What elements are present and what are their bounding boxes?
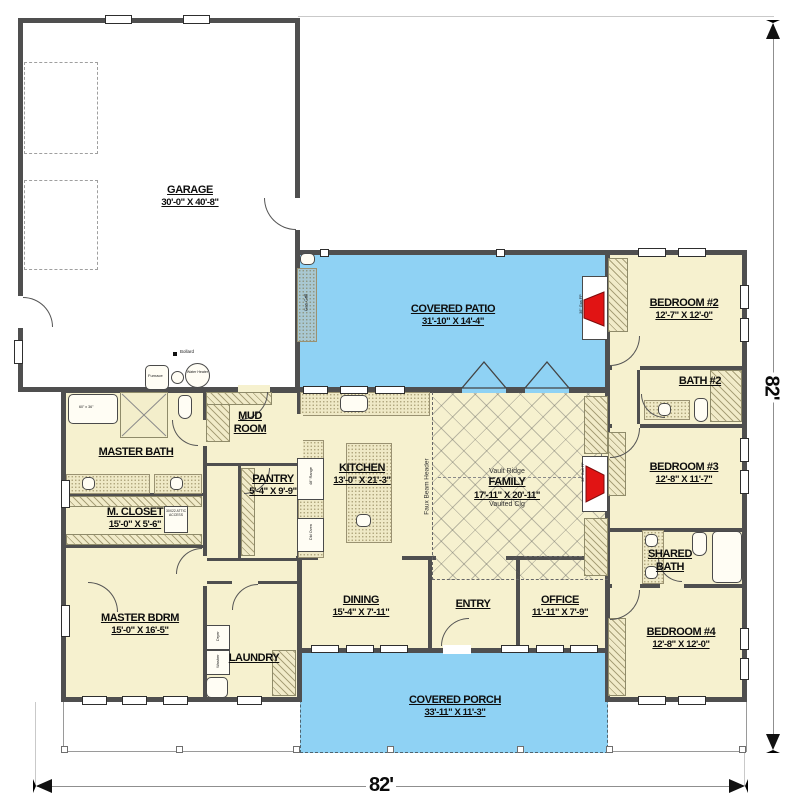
bath2-name: BATH #2 (679, 375, 721, 388)
window (678, 248, 706, 257)
laundry-label: LAUNDRY (229, 652, 280, 665)
hall-opening (293, 414, 303, 458)
window (122, 696, 147, 705)
cased-opening (318, 556, 402, 560)
bath2-toilet (694, 398, 708, 422)
bedroom3-dims: 12'-8" X 11'-7" (650, 474, 719, 485)
master-toilet (178, 395, 192, 419)
vanity-sink (658, 403, 671, 416)
window (740, 628, 749, 650)
porch-post (739, 746, 746, 753)
bedroom2-label: BEDROOM #2 12'-7" X 12'-0" (650, 297, 719, 322)
wall-segment (205, 558, 298, 561)
gas-grill-label: Gas Grill (305, 285, 310, 319)
vaulted-clg-note: Vaulted Clg (474, 501, 540, 509)
bedroom2-dims: 12'-7" X 12'-0" (650, 310, 719, 321)
pantry-name: PANTRY (249, 473, 296, 486)
porch-post (517, 746, 524, 753)
extension-line-left (35, 702, 36, 786)
water-heater-label: Water Heater (186, 371, 209, 375)
window (61, 480, 70, 508)
tub-size-label: 60" x 36" (79, 406, 93, 410)
vanity-sink (645, 534, 658, 547)
porch-post (293, 746, 300, 753)
covered-porch-dims: 33'-11" X 11'-3" (409, 707, 501, 718)
master-bath-name: MASTER BATH (99, 446, 174, 459)
window (105, 15, 132, 24)
garage-floor-drain (171, 371, 184, 384)
patio-sink (300, 253, 315, 265)
patio-door-gap (525, 384, 569, 393)
bedroom3-label: BEDROOM #3 12'-8" X 11'-7" (650, 461, 719, 486)
bedroom4-name: BEDROOM #4 (647, 626, 716, 639)
bedroom3-name: BEDROOM #3 (650, 461, 719, 474)
window (311, 645, 339, 653)
window (340, 386, 368, 394)
closet-shelving (66, 534, 202, 545)
entry-door-gap (443, 645, 471, 654)
garage-label: GARAGE 30'-0" X 40'-8" (161, 184, 218, 209)
window (61, 605, 70, 637)
family-dims: 17'-11" X 20'-11" (474, 490, 540, 501)
office-dims: 11'-11" X 7'-9" (532, 607, 588, 618)
dimension-arrow-left (33, 779, 52, 793)
covered-patio-label: COVERED PATIO 31'-10" X 14'-4" (411, 303, 495, 328)
family-fireplace-niche (582, 456, 608, 512)
kitchen-label: KITCHEN 13'-0" X 21'-3" (333, 462, 390, 487)
pantry-dims: 5'-4" X 9'-9" (249, 486, 296, 497)
family-fireplace-label: 36" Gas FP (581, 457, 585, 487)
window (375, 386, 405, 394)
kitchen-sink (340, 395, 368, 412)
mud-room-label: MUD ROOM (234, 410, 267, 436)
wall-segment (63, 545, 205, 548)
bedroom2-closet (608, 258, 628, 332)
master-bdrm-label: MASTER BDRM 15'-0" X 16'-5" (101, 612, 179, 637)
dining-label: DINING 15'-4" X 7'-11" (333, 594, 390, 619)
master-bath-label: MASTER BATH (99, 446, 174, 459)
window (237, 696, 262, 705)
covered-porch-name: COVERED PORCH (409, 694, 501, 707)
bedroom4-label: BEDROOM #4 12'-8" X 12'-0" (647, 626, 716, 651)
bollard-label: Bollard (180, 350, 194, 355)
window (380, 645, 408, 653)
window (740, 438, 749, 462)
laundry-name: LAUNDRY (229, 652, 280, 665)
door-gap (612, 584, 640, 588)
window (570, 645, 598, 653)
window (638, 248, 666, 257)
family-name: FAMILY (474, 476, 540, 489)
garage-storage-dashed (24, 180, 98, 270)
window (346, 645, 374, 653)
porch-post (606, 746, 613, 753)
kitchen-island (346, 443, 392, 543)
wall-segment (205, 463, 298, 466)
patio-post (320, 249, 329, 257)
door-gap (660, 584, 684, 588)
family-builtin (584, 396, 608, 454)
family-label: Vault Ridge FAMILY 17'-11" X 20'-11" Vau… (474, 468, 540, 509)
bedroom4-dims: 12'-8" X 12'-0" (647, 639, 716, 650)
bedroom4-closet (608, 618, 626, 696)
mud-room-name: MUD ROOM (234, 410, 267, 436)
m-closet-dims: 15'-0" X 5'-6" (107, 519, 163, 530)
master-vanity (66, 474, 150, 494)
patio-fireplace-label: 36" Gas FP (579, 289, 583, 319)
water-heater: Water Heater (185, 363, 210, 388)
master-bdrm-name: MASTER BDRM (101, 612, 179, 625)
covered-patio-name: COVERED PATIO (411, 303, 495, 316)
entry-label: ENTRY (456, 598, 491, 611)
garage-dims: 30'-0" X 40'-8" (161, 197, 218, 208)
dimension-arrow-right (729, 779, 748, 793)
vault-ridge-note: Vault Ridge (474, 468, 540, 476)
window (740, 470, 749, 494)
island-sink (356, 514, 371, 527)
window (163, 696, 188, 705)
m-closet-label: M. CLOSET 15'-0" X 5'-6" (107, 506, 163, 531)
covered-porch-label: COVERED PORCH 33'-11" X 11'-3" (409, 694, 501, 719)
vanity-sink (82, 477, 95, 490)
extension-line-top (298, 16, 774, 17)
covered-patio-dims: 31'-10" X 14'-4" (411, 316, 495, 327)
bath2-label: BATH #2 (679, 375, 721, 388)
dimension-arrow-down (766, 734, 780, 753)
master-shower (120, 392, 168, 438)
window (638, 696, 666, 705)
m-closet-name: M. CLOSET (107, 506, 163, 519)
dimension-bottom-value: 82' (366, 774, 396, 797)
window (740, 658, 749, 680)
door-gap (203, 556, 207, 586)
window (740, 318, 749, 342)
attic-access-label: 30X22 ATTIC ACCESS (165, 510, 187, 517)
shared-bath-name: SHARED BATH (648, 548, 692, 574)
double-oven-label: Dbl Oven (309, 517, 313, 547)
pantry-label: PANTRY 5'-4" X 9'-9" (249, 473, 296, 498)
window (678, 696, 706, 705)
vanity-sink (170, 477, 183, 490)
garage-name: GARAGE (161, 184, 218, 197)
patio-post (496, 249, 505, 257)
window (303, 386, 328, 394)
window (183, 15, 210, 24)
dryer-label: Dryer (216, 624, 220, 648)
entry-name: ENTRY (456, 598, 491, 611)
kitchen-dims: 13'-0" X 21'-3" (333, 475, 390, 486)
patio-fireplace-niche (582, 276, 608, 340)
patio-door-gap (462, 384, 506, 393)
window (14, 340, 23, 364)
garage-storage-dashed (24, 62, 98, 154)
window (536, 645, 564, 653)
family-builtin (584, 518, 608, 576)
dimension-right-value: 82' (760, 372, 783, 402)
master-bdrm-dims: 15'-0" X 16'-5" (101, 625, 179, 636)
porch-post (387, 746, 394, 753)
porch-post (176, 746, 183, 753)
floor-plan-canvas: Furnace Water Heater Bollard Gas Grill 3… (0, 0, 794, 800)
laundry-sink (206, 677, 228, 698)
dimension-arrow-up (766, 20, 780, 39)
door-gap (14, 296, 23, 328)
washer-label: Washer (216, 649, 220, 673)
kitchen-name: KITCHEN (333, 462, 390, 475)
window (740, 285, 749, 309)
range-label: 48" Range (309, 461, 313, 491)
door-gap (612, 366, 640, 370)
bedroom2-name: BEDROOM #2 (650, 297, 719, 310)
faux-beam-label: Faux Beam Header (423, 452, 430, 522)
window (501, 645, 529, 653)
shared-bath-label: SHARED BATH (648, 548, 692, 574)
attic-access: 30X22 ATTIC ACCESS (164, 506, 188, 533)
porch-post (61, 746, 68, 753)
shared-bath-toilet (692, 532, 707, 556)
bollard-symbol (173, 352, 177, 356)
shared-bath-tub (712, 531, 742, 583)
furnace-label: Furnace (148, 374, 163, 378)
dining-dims: 15'-4" X 7'-11" (333, 607, 390, 618)
window (82, 696, 107, 705)
dining-name: DINING (333, 594, 390, 607)
office-label: OFFICE 11'-11" X 7'-9" (532, 594, 588, 619)
office-name: OFFICE (532, 594, 588, 607)
